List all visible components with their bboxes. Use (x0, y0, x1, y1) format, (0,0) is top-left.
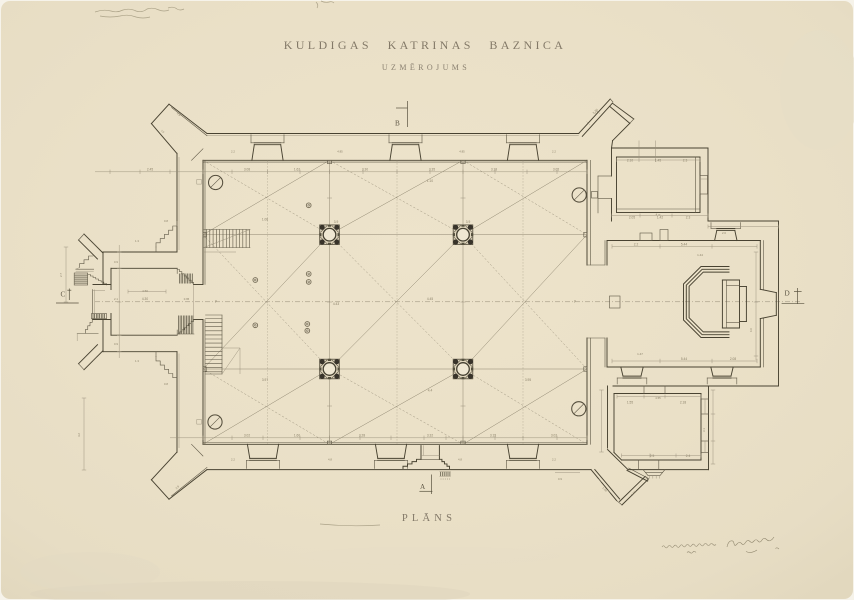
svg-text:B: B (395, 120, 400, 128)
svg-text:5.44: 5.44 (681, 242, 687, 246)
svg-text:C: C (61, 290, 66, 298)
svg-text:3.05: 3.05 (553, 168, 559, 172)
svg-text:2.2: 2.2 (634, 242, 639, 246)
svg-text:4.4: 4.4 (428, 389, 433, 393)
svg-text:4 m: 4 m (656, 213, 661, 217)
svg-text:2.2: 2.2 (231, 150, 235, 154)
svg-text:3.28: 3.28 (359, 434, 365, 438)
svg-text:2.3: 2.3 (683, 159, 688, 163)
svg-text:2.18: 2.18 (680, 401, 686, 405)
svg-text:1.60: 1.60 (294, 434, 300, 438)
svg-text:2.45: 2.45 (147, 168, 153, 172)
svg-text:6.0: 6.0 (749, 328, 753, 332)
svg-text:1.08: 1.08 (262, 218, 268, 222)
svg-text:2.4: 2.4 (686, 454, 691, 458)
svg-text:4.55: 4.55 (655, 396, 661, 400)
svg-text:4.2: 4.2 (77, 433, 81, 437)
svg-text:3.32: 3.32 (427, 434, 433, 438)
svg-text:2.05: 2.05 (629, 216, 635, 220)
svg-text:3.15: 3.15 (490, 434, 496, 438)
svg-text:1.44: 1.44 (697, 253, 703, 257)
svg-text:p: p (574, 299, 576, 303)
svg-text:UZMĒROJUMS: UZMĒROJUMS (382, 63, 470, 72)
svg-text:3.1: 3.1 (702, 428, 706, 432)
svg-text:A: A (420, 483, 426, 491)
svg-text:2.2: 2.2 (231, 458, 235, 462)
svg-text:0.9: 0.9 (114, 342, 118, 346)
svg-text:D: D (785, 290, 790, 298)
svg-text:3.35: 3.35 (429, 168, 435, 172)
svg-text:0.9: 0.9 (558, 477, 562, 481)
svg-text:3.02: 3.02 (244, 434, 250, 438)
svg-text:1.3: 1.3 (135, 239, 139, 243)
svg-text:5.44: 5.44 (681, 357, 687, 361)
svg-text:3.18: 3.18 (491, 168, 497, 172)
svg-text:KULDIGAS KATRINAS BAZNICA: KULDIGAS KATRINAS BAZNICA (284, 38, 566, 52)
svg-text:2.2: 2.2 (552, 150, 556, 154)
svg-text:3.97: 3.97 (262, 378, 268, 382)
svg-text:4.8: 4.8 (328, 458, 332, 462)
svg-text:4.30: 4.30 (142, 297, 148, 301)
svg-text:4.85: 4.85 (337, 150, 343, 154)
svg-text:4.50: 4.50 (142, 289, 148, 293)
svg-text:1.45: 1.45 (655, 159, 661, 163)
svg-text:2.6: 2.6 (722, 231, 726, 235)
svg-text:2.2: 2.2 (552, 458, 556, 462)
svg-text:0.8: 0.8 (164, 219, 168, 223)
svg-text:1.55: 1.55 (627, 401, 633, 405)
svg-text:0.8: 0.8 (164, 382, 168, 386)
svg-text:2.1: 2.1 (114, 297, 118, 301)
svg-text:3.9: 3.9 (466, 220, 471, 224)
svg-text:1.3: 1.3 (135, 359, 139, 363)
svg-text:3.9: 3.9 (334, 220, 339, 224)
svg-text:3.30: 3.30 (362, 168, 368, 172)
svg-text:2.3: 2.3 (686, 216, 691, 220)
svg-text:PLĀNS: PLĀNS (402, 513, 456, 524)
svg-text:2.08: 2.08 (730, 357, 736, 361)
svg-text:3.95: 3.95 (525, 378, 531, 382)
svg-text:1.47: 1.47 (637, 352, 643, 356)
svg-text:1.10: 1.10 (427, 179, 433, 183)
svg-text:0.95: 0.95 (184, 297, 190, 301)
svg-text:4.8: 4.8 (458, 458, 462, 462)
svg-text:2.10: 2.10 (627, 159, 633, 163)
svg-text:2.5: 2.5 (650, 454, 655, 458)
svg-text:p: p (215, 299, 217, 303)
svg-text:1.62: 1.62 (294, 168, 300, 172)
svg-text:3.08: 3.08 (244, 168, 250, 172)
svg-text:4.43: 4.43 (333, 302, 339, 306)
svg-text:2.7: 2.7 (59, 273, 63, 277)
svg-text:0.9: 0.9 (114, 260, 118, 264)
svg-text:3.02: 3.02 (551, 434, 557, 438)
svg-text:4.45: 4.45 (427, 297, 433, 301)
svg-text:4.85: 4.85 (459, 150, 465, 154)
